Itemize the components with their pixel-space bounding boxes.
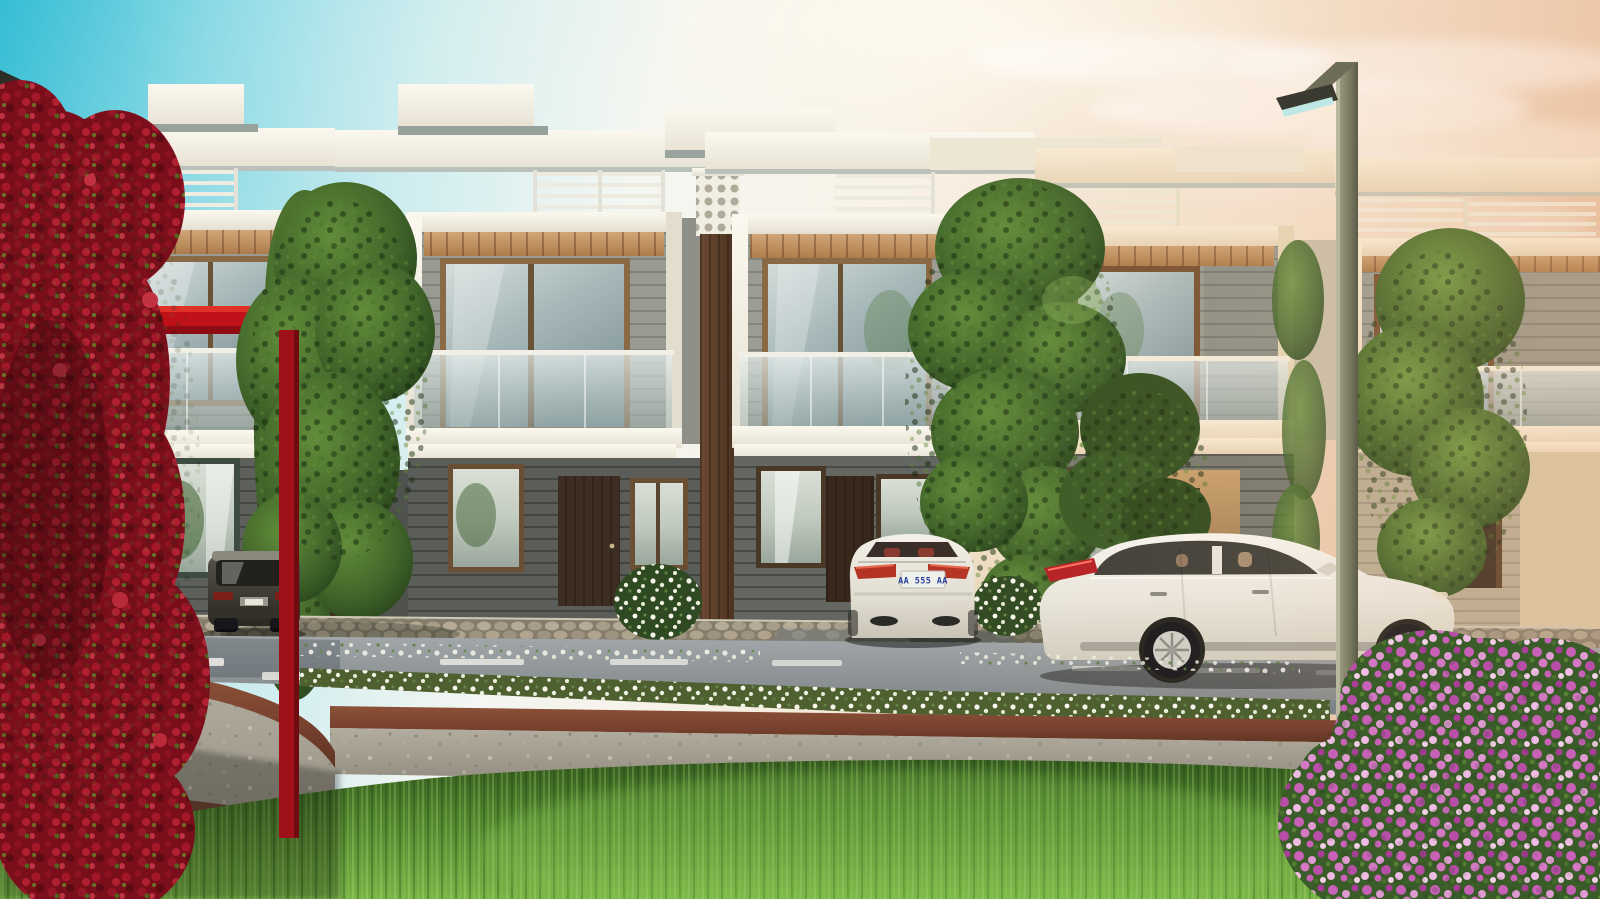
golden-light-overlay — [900, 0, 1600, 700]
wood-cladding-strip — [700, 234, 734, 634]
white-flower-bush — [614, 564, 702, 640]
balcony-volume — [406, 212, 682, 448]
parapet — [335, 130, 705, 172]
entry-door — [558, 476, 620, 606]
villa-render-image: AA 555 AA — [0, 0, 1600, 899]
ground-window — [448, 464, 524, 572]
ground-window — [630, 478, 688, 570]
glass-balustrade — [412, 350, 674, 436]
ground-window — [756, 466, 826, 568]
roof-box — [398, 84, 534, 132]
scene-canvas: AA 555 AA — [0, 0, 1600, 899]
roof-box — [148, 84, 244, 130]
tail-light — [213, 592, 233, 600]
